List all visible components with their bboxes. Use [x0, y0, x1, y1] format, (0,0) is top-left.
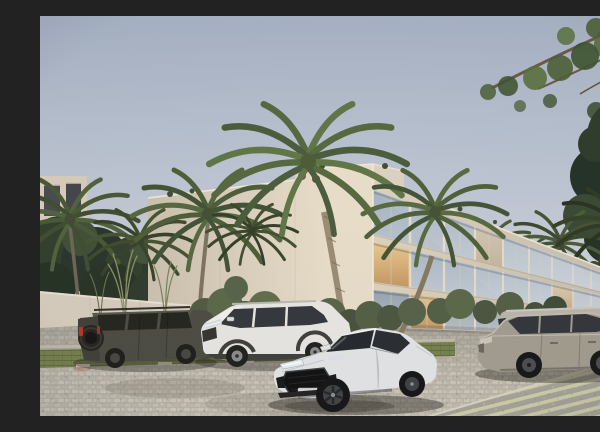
scene-render: overhanging tree branch	[40, 16, 600, 416]
warm-tint-overlay	[40, 16, 600, 416]
rendered-photo: overhanging tree branch	[40, 16, 600, 416]
